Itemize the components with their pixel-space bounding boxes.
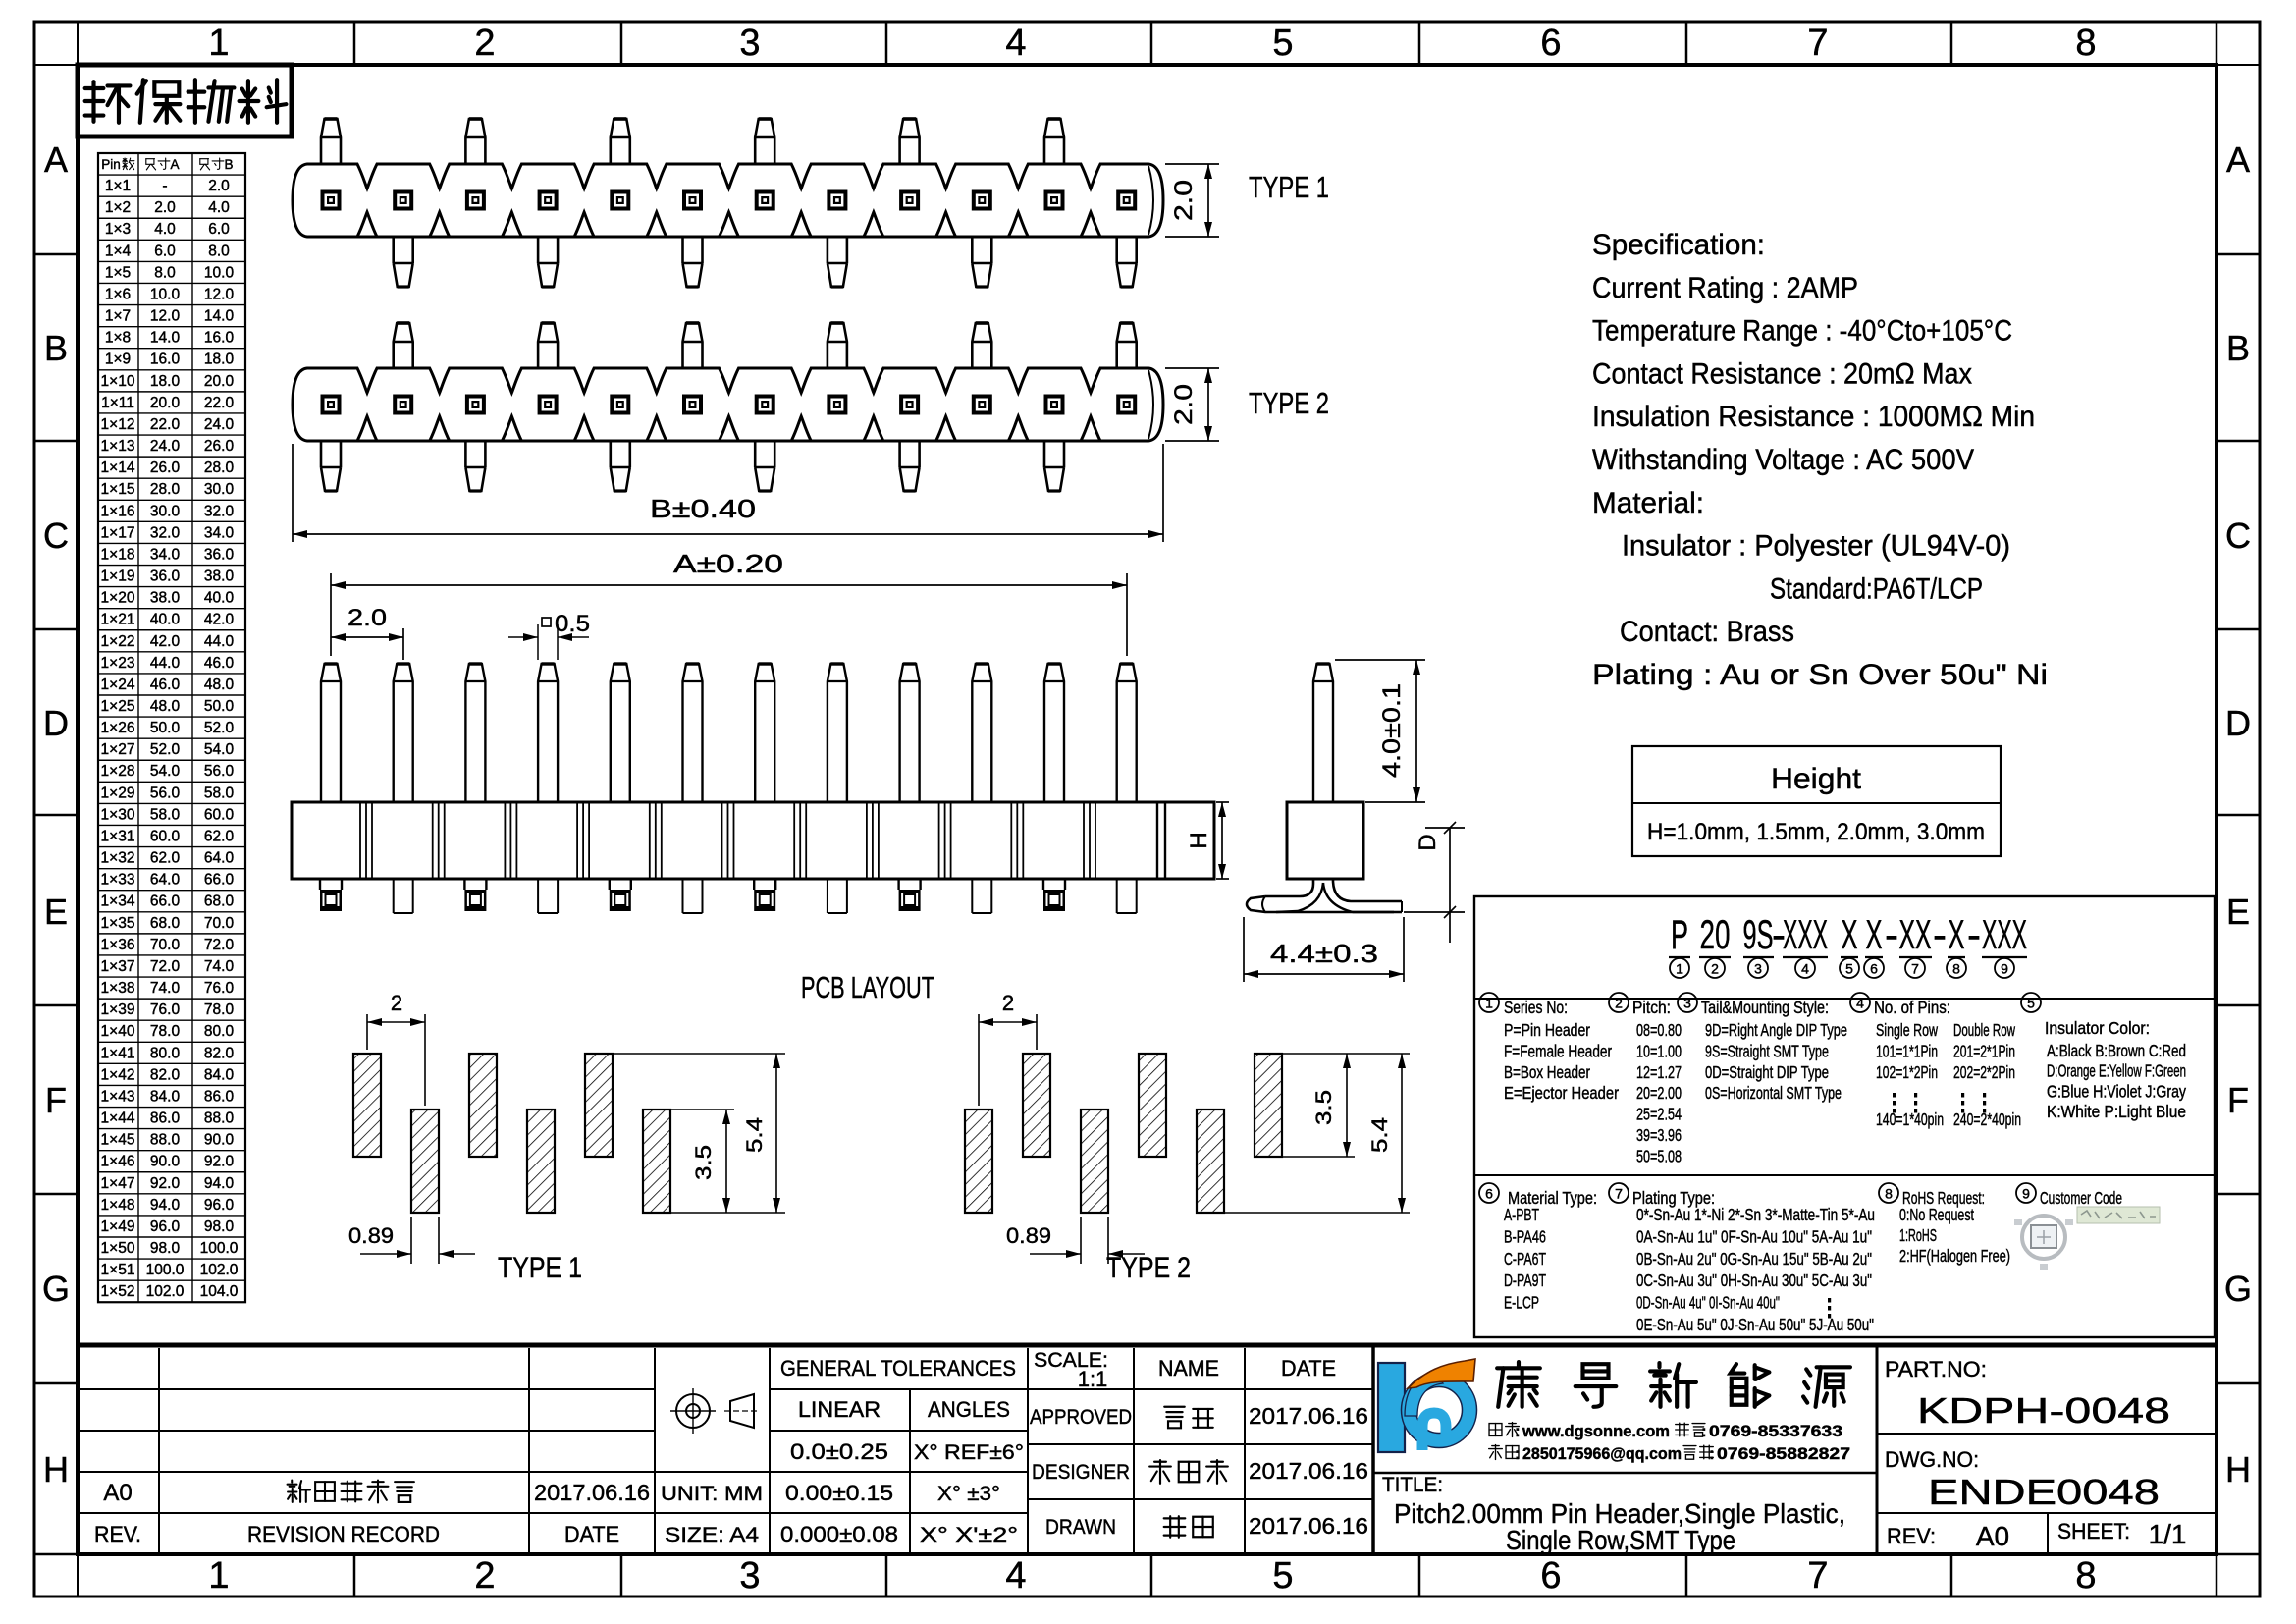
svg-text:68.0: 68.0 [150,915,181,932]
svg-text:76.0: 76.0 [150,1001,181,1018]
svg-text:GENERAL TOLERANCES: GENERAL TOLERANCES [780,1356,1016,1380]
svg-text:Current Rating : 2AMP: Current Rating : 2AMP [1592,272,1858,304]
svg-text:48.0: 48.0 [150,698,181,715]
svg-text:58.0: 58.0 [150,806,181,823]
svg-text:3: 3 [739,1555,760,1597]
svg-text:1×36: 1×36 [101,937,135,953]
svg-text:2017.06.16: 2017.06.16 [1249,1513,1368,1539]
svg-text:1×18: 1×18 [101,546,135,563]
svg-text:PCB LAYOUT: PCB LAYOUT [801,970,934,1004]
svg-text:1×12: 1×12 [101,416,135,433]
svg-text:0A-Sn-Au 1u" 0F-Sn-Au 10u" 5A: 0A-Sn-Au 1u" 0F-Sn-Au 10u" 5A-Au 1u" [1636,1226,1872,1246]
svg-text:P: P [1671,911,1688,957]
svg-text:100.0: 100.0 [200,1240,239,1257]
svg-text:1×16: 1×16 [101,503,135,519]
svg-text:1×2: 1×2 [105,199,131,216]
svg-text:2: 2 [1002,991,1014,1015]
svg-text:1×3: 1×3 [105,221,131,238]
svg-text:66.0: 66.0 [204,872,235,889]
svg-text:36.0: 36.0 [150,568,181,585]
svg-text:3: 3 [1754,961,1762,977]
svg-text:202=2*2Pin: 202=2*2Pin [1953,1062,2015,1082]
svg-text:Standard:PA6T/LCP: Standard:PA6T/LCP [1770,572,1983,605]
svg-text:8: 8 [1952,961,1960,977]
svg-text:9S=Straight SMT Type: 9S=Straight SMT Type [1705,1041,1829,1060]
svg-text:7: 7 [1911,961,1919,977]
svg-text:66.0: 66.0 [150,893,181,910]
svg-text:DESIGNER: DESIGNER [1032,1461,1130,1484]
svg-text:7: 7 [1615,1186,1623,1202]
svg-text:1×4: 1×4 [105,243,132,259]
svg-text:E=Ejector Header: E=Ejector Header [1504,1083,1619,1103]
svg-text:4: 4 [1005,23,1026,64]
svg-text:1×51: 1×51 [101,1262,135,1278]
svg-text:16.0: 16.0 [150,352,181,368]
svg-text:A: A [2226,139,2250,180]
svg-text:24.0: 24.0 [150,438,181,455]
svg-text:No. of Pins:: No. of Pins: [1874,998,1950,1017]
svg-text:2:HF(Halogen Free): 2:HF(Halogen Free) [1899,1246,2010,1266]
svg-text:20.0: 20.0 [204,373,235,390]
svg-text:ENDE0048: ENDE0048 [1928,1472,2160,1512]
svg-text:0769-85337633: 0769-85337633 [1709,1422,1842,1440]
svg-text:Pitch:: Pitch: [1632,998,1671,1017]
svg-text:64.0: 64.0 [204,850,235,867]
svg-text:UNIT: MM: UNIT: MM [661,1483,763,1505]
svg-text:REVISION RECORD: REVISION RECORD [247,1522,440,1546]
svg-text:18.0: 18.0 [150,373,181,390]
svg-text:Insulator : Polyester (UL94V-0: Insulator : Polyester (UL94V-0) [1622,530,2010,563]
svg-text:3: 3 [739,23,760,64]
svg-text:A0: A0 [103,1480,132,1506]
svg-text:1×17: 1×17 [101,524,135,541]
svg-text:1×20: 1×20 [101,590,135,607]
svg-text:86.0: 86.0 [150,1110,181,1127]
svg-text:1:1: 1:1 [1078,1367,1108,1391]
svg-text::: : [1709,1444,1715,1463]
svg-text:2850175966@qq.com: 2850175966@qq.com [1522,1444,1682,1463]
svg-text:4.0: 4.0 [154,221,176,238]
svg-text:P=Pin Header: P=Pin Header [1504,1020,1590,1040]
svg-text:H=1.0mm, 1.5mm, 2.0mm, 3.0mm: H=1.0mm, 1.5mm, 2.0mm, 3.0mm [1647,819,1985,845]
svg-text:38.0: 38.0 [204,568,235,585]
svg-text:KDPH-0048: KDPH-0048 [1917,1390,2170,1431]
svg-text:22.0: 22.0 [150,416,181,433]
svg-text:78.0: 78.0 [204,1001,235,1018]
svg-text:REV.: REV. [94,1522,141,1546]
svg-text:74.0: 74.0 [204,958,235,975]
svg-text:240=2*40pin: 240=2*40pin [1953,1110,2021,1129]
svg-text:9S: 9S [1743,911,1774,957]
svg-text:-: - [1885,911,1898,957]
svg-text:1×28: 1×28 [101,763,135,780]
svg-text:X: X [1842,911,1858,957]
svg-text:Customer Code: Customer Code [2040,1188,2122,1208]
svg-text:56.0: 56.0 [150,785,181,801]
svg-text:APPROVED: APPROVED [1030,1406,1132,1429]
svg-text:2: 2 [391,991,402,1015]
svg-text:1×9: 1×9 [105,352,131,368]
svg-text:Single Row: Single Row [1876,1020,1938,1040]
svg-text:1×42: 1×42 [101,1066,135,1083]
svg-text:B=Box Header: B=Box Header [1504,1062,1590,1082]
svg-text:4.4±0.3: 4.4±0.3 [1270,939,1378,968]
svg-text:Withstanding Voltage : AC 500V: Withstanding Voltage : AC 500V [1592,444,1974,476]
svg-text:28.0: 28.0 [150,481,181,498]
svg-text::: : [1515,1422,1521,1440]
svg-text:94.0: 94.0 [204,1175,235,1192]
svg-text:50=5.08: 50=5.08 [1636,1146,1682,1165]
svg-text::: : [1515,1444,1521,1463]
svg-text:94.0: 94.0 [150,1197,181,1214]
svg-text:1×10: 1×10 [101,373,135,390]
svg-text:D: D [1415,834,1441,850]
svg-text:ANGLES: ANGLES [928,1397,1010,1422]
svg-text:36.0: 36.0 [204,546,235,563]
svg-text:44.0: 44.0 [150,655,181,672]
svg-text:0*-Sn-Au 1*-Ni 2*-Sn 3*-Matte-: 0*-Sn-Au 1*-Ni 2*-Sn 3*-Matte-Tin 5*-Au [1636,1205,1875,1224]
svg-text:DRAWN: DRAWN [1045,1516,1116,1539]
svg-text:6: 6 [1485,1186,1493,1202]
svg-text:84.0: 84.0 [150,1088,181,1105]
svg-text:0S=Horizontal SMT Type: 0S=Horizontal SMT Type [1705,1083,1842,1103]
svg-text:70.0: 70.0 [150,937,181,953]
svg-text:1×30: 1×30 [101,806,135,823]
svg-text:20.0: 20.0 [150,395,181,411]
svg-text:102.0: 102.0 [146,1283,185,1300]
svg-text:1×40: 1×40 [101,1023,135,1040]
svg-text:1×25: 1×25 [101,698,135,715]
svg-text:0D=Straight DIP Type: 0D=Straight DIP Type [1705,1062,1829,1082]
svg-text:98.0: 98.0 [204,1218,235,1235]
svg-text:20=2.00: 20=2.00 [1636,1083,1682,1103]
svg-text:62.0: 62.0 [204,828,235,844]
svg-text:0.0±0.25: 0.0±0.25 [790,1439,888,1464]
svg-text:1×19: 1×19 [101,568,135,585]
svg-text:Height: Height [1771,763,1862,795]
svg-text:1×15: 1×15 [101,481,135,498]
svg-text:SHEET:: SHEET: [2057,1519,2130,1543]
svg-text:16.0: 16.0 [204,330,235,347]
svg-text:2.0: 2.0 [154,199,176,216]
svg-text:82.0: 82.0 [150,1066,181,1083]
svg-text:9: 9 [2022,1186,2030,1202]
svg-text:E: E [2226,892,2250,932]
svg-text:1×13: 1×13 [101,438,135,455]
svg-text:NAME: NAME [1158,1356,1219,1380]
svg-text:Contact: Brass: Contact: Brass [1620,616,1794,648]
svg-text:1×31: 1×31 [101,828,135,844]
svg-text:E: E [44,892,68,932]
svg-text:1×21: 1×21 [101,612,135,628]
svg-text:B: B [224,157,233,172]
svg-text:6: 6 [1540,23,1561,64]
svg-text:100.0: 100.0 [146,1262,185,1278]
svg-text:1/1: 1/1 [2149,1519,2187,1549]
svg-text:H: H [43,1449,69,1489]
svg-text:5: 5 [1272,23,1293,64]
svg-text:1×5: 1×5 [105,264,131,281]
svg-text:8: 8 [1885,1186,1893,1202]
svg-text:14.0: 14.0 [150,330,181,347]
svg-text:1×27: 1×27 [101,741,135,758]
svg-text:4: 4 [1005,1555,1026,1597]
svg-text:34.0: 34.0 [150,546,181,563]
svg-text:3.5: 3.5 [691,1145,716,1180]
svg-text:TYPE 1: TYPE 1 [1249,170,1329,204]
svg-text:1×39: 1×39 [101,1001,135,1018]
svg-text:F: F [2227,1080,2249,1120]
svg-text:0.89: 0.89 [1006,1223,1051,1248]
svg-text:5: 5 [2027,996,2035,1011]
svg-text:0E-Sn-Au 5u" 0J-Sn-Au 50u" 5J: 0E-Sn-Au 5u" 0J-Sn-Au 50u" 5J-Au 50u" [1636,1315,1874,1334]
svg-text:E-LCP: E-LCP [1504,1293,1539,1313]
svg-text:140=1*40pin: 140=1*40pin [1876,1110,1944,1129]
svg-text:TYPE 2: TYPE 2 [1249,386,1329,420]
svg-text:Series No:: Series No: [1504,998,1568,1017]
svg-text:20: 20 [1700,911,1731,957]
svg-text:A0: A0 [1976,1521,2009,1551]
svg-text:10.0: 10.0 [150,286,181,302]
svg-text:48.0: 48.0 [204,677,235,693]
svg-text:22.0: 22.0 [204,395,235,411]
svg-text:1×41: 1×41 [101,1045,135,1061]
svg-text:1×38: 1×38 [101,980,135,997]
svg-text:LINEAR: LINEAR [798,1397,881,1422]
svg-text::: : [1701,1422,1707,1440]
svg-text:5: 5 [1845,961,1853,977]
svg-text:1: 1 [208,23,229,64]
svg-text:1×34: 1×34 [101,893,135,910]
svg-text:101=1*1Pin: 101=1*1Pin [1876,1041,1938,1060]
svg-text:XXX: XXX [1783,911,1828,957]
svg-text:-: - [1967,911,1981,957]
svg-text:PART.NO:: PART.NO: [1885,1357,1987,1381]
svg-text:2.0: 2.0 [1170,180,1198,221]
svg-text:1×47: 1×47 [101,1175,135,1192]
svg-text:5.4: 5.4 [742,1117,767,1153]
svg-text:0.89: 0.89 [348,1223,394,1248]
svg-text:-: - [162,178,167,194]
svg-text:A-PBT: A-PBT [1504,1205,1539,1224]
svg-text:1×6: 1×6 [105,286,131,302]
svg-text:46.0: 46.0 [150,677,181,693]
svg-text:1×32: 1×32 [101,850,135,867]
svg-text:3.5: 3.5 [1311,1090,1336,1125]
svg-text:1×43: 1×43 [101,1088,135,1105]
svg-text:56.0: 56.0 [204,763,235,780]
svg-text:DATE: DATE [564,1522,619,1546]
svg-text:Plating : Au or Sn Over 50u" N: Plating : Au or Sn Over 50u" Ni [1592,659,2048,691]
svg-text:A: A [170,157,179,172]
svg-text:54.0: 54.0 [150,763,181,780]
svg-text:1×45: 1×45 [101,1132,135,1149]
svg-text:D:Orange E:Yellow F:Green: D:Orange E:Yellow F:Green [2047,1061,2186,1081]
svg-text:1×23: 1×23 [101,655,135,672]
svg-text:1: 1 [208,1555,229,1597]
svg-text:4: 4 [1856,996,1864,1011]
svg-text:A: A [44,139,68,180]
svg-text:30.0: 30.0 [204,481,235,498]
svg-text:80.0: 80.0 [150,1045,181,1061]
svg-text:K:White P:Light Blue: K:White P:Light Blue [2047,1102,2186,1121]
svg-text:1×1: 1×1 [105,178,131,194]
svg-text:6.0: 6.0 [208,221,230,238]
svg-text:www.dgsonne.com: www.dgsonne.com [1522,1422,1670,1440]
svg-text:C-PA6T: C-PA6T [1504,1249,1546,1269]
svg-text:52.0: 52.0 [204,720,235,736]
svg-text:0C-Sn-Au 3u" 0H-Sn-Au 30u" 5C: 0C-Sn-Au 3u" 0H-Sn-Au 30u" 5C-Au 3u" [1636,1271,1872,1290]
svg-text:B±0.40: B±0.40 [650,494,756,523]
svg-text:8: 8 [2075,1555,2096,1597]
svg-text:3: 3 [1683,996,1691,1011]
svg-text:Double Row: Double Row [1953,1020,2015,1040]
svg-text:0.5: 0.5 [555,611,590,637]
svg-text:X° REF±6°: X° REF±6° [914,1441,1024,1464]
svg-text:X° X'±2°: X° X'±2° [920,1524,1018,1546]
svg-text:90.0: 90.0 [204,1132,235,1149]
svg-text:7: 7 [1807,23,1828,64]
svg-text:12=1.27: 12=1.27 [1636,1062,1682,1082]
svg-text:A:Black B:Brown C:Red: A:Black B:Brown C:Red [2047,1041,2186,1060]
svg-text:6: 6 [1870,961,1878,977]
svg-text:12.0: 12.0 [204,286,235,302]
svg-text:5: 5 [1272,1555,1293,1597]
svg-text:10=1.00: 10=1.00 [1636,1041,1682,1060]
svg-text:62.0: 62.0 [150,850,181,867]
svg-text:50.0: 50.0 [204,698,235,715]
svg-text:1×35: 1×35 [101,915,135,932]
svg-text:60.0: 60.0 [204,806,235,823]
svg-text:1×8: 1×8 [105,330,131,347]
svg-text:60.0: 60.0 [150,828,181,844]
svg-text:Specification:: Specification: [1592,229,1765,261]
svg-text:2017.06.16: 2017.06.16 [534,1480,650,1505]
svg-text:F=Female Header: F=Female Header [1504,1041,1612,1060]
svg-text:1×29: 1×29 [101,785,135,801]
svg-text:H: H [1186,832,1212,848]
svg-text:2.0: 2.0 [208,178,230,194]
svg-text:08=0.80: 08=0.80 [1636,1020,1682,1040]
svg-text:Material:: Material: [1592,487,1704,519]
svg-text:96.0: 96.0 [150,1218,181,1235]
svg-text:1×50: 1×50 [101,1240,135,1257]
svg-text:42.0: 42.0 [150,633,181,650]
svg-text:DWG.NO:: DWG.NO: [1885,1447,1979,1472]
svg-text:14.0: 14.0 [204,308,235,325]
svg-text:102=1*2Pin: 102=1*2Pin [1876,1062,1938,1082]
svg-text:201=2*1Pin: 201=2*1Pin [1953,1041,2015,1060]
svg-text:52.0: 52.0 [150,741,181,758]
svg-text:64.0: 64.0 [150,872,181,889]
svg-text:7: 7 [1807,1555,1828,1597]
svg-text:82.0: 82.0 [204,1045,235,1061]
svg-text:8.0: 8.0 [154,264,176,281]
svg-text:1×52: 1×52 [101,1283,135,1300]
svg-text:32.0: 32.0 [204,503,235,519]
svg-text:10.0: 10.0 [204,264,235,281]
svg-text:Insulator Color:: Insulator Color: [2045,1018,2150,1038]
svg-text:96.0: 96.0 [204,1197,235,1214]
svg-text:2: 2 [1711,961,1719,977]
svg-text:32.0: 32.0 [150,524,181,541]
svg-text:B: B [2226,328,2250,368]
svg-text:XXX: XXX [1982,911,2027,957]
svg-text:-: - [1933,911,1947,957]
svg-text:1×24: 1×24 [101,677,135,693]
svg-text:9: 9 [2001,961,2008,977]
svg-text:0B-Sn-Au 2u" 0G-Sn-Au 15u" 5B: 0B-Sn-Au 2u" 0G-Sn-Au 15u" 5B-Au 2u" [1636,1249,1872,1269]
svg-text:12.0: 12.0 [150,308,181,325]
svg-text:X: X [1866,911,1883,957]
svg-text:102.0: 102.0 [200,1262,239,1278]
svg-text:1×46: 1×46 [101,1154,135,1170]
svg-text:92.0: 92.0 [204,1154,235,1170]
svg-text:78.0: 78.0 [150,1023,181,1040]
svg-text:1×49: 1×49 [101,1218,135,1235]
svg-text:98.0: 98.0 [150,1240,181,1257]
svg-text:26.0: 26.0 [150,460,181,476]
svg-text:25=2.54: 25=2.54 [1636,1105,1682,1124]
svg-text:XX: XX [1899,911,1932,957]
svg-text:84.0: 84.0 [204,1066,235,1083]
svg-text:Tail&Mounting Style:: Tail&Mounting Style: [1701,998,1829,1017]
svg-text:1: 1 [1485,996,1493,1011]
svg-text:42.0: 42.0 [204,612,235,628]
svg-text:2.0: 2.0 [1170,384,1198,425]
svg-text:74.0: 74.0 [150,980,181,997]
svg-text:4: 4 [1801,961,1809,977]
svg-text:1×33: 1×33 [101,872,135,889]
svg-text:2: 2 [474,23,495,64]
svg-text:30.0: 30.0 [150,503,181,519]
svg-text:D-PA9T: D-PA9T [1504,1271,1546,1290]
svg-text:TITLE:: TITLE: [1382,1474,1443,1496]
svg-text:70.0: 70.0 [204,915,235,932]
svg-text:8.0: 8.0 [208,243,230,259]
svg-text:F: F [45,1080,67,1120]
svg-text:38.0: 38.0 [150,590,181,607]
svg-text:0.000±0.08: 0.000±0.08 [780,1522,898,1546]
svg-text:8: 8 [2075,23,2096,64]
svg-text:TYPE 1: TYPE 1 [498,1252,582,1284]
svg-text:9D=Right Angle DIP Type: 9D=Right Angle DIP Type [1705,1020,1847,1040]
svg-text:6: 6 [1540,1555,1561,1597]
svg-text:G:Blue H:Violet J:Gray: G:Blue H:Violet J:Gray [2047,1081,2186,1101]
svg-text:0:No Request: 0:No Request [1899,1205,1974,1224]
svg-text:4.0: 4.0 [208,199,230,216]
svg-text:Contact Resistance : 20mΩ Max: Contact Resistance : 20mΩ Max [1592,357,1972,390]
svg-text:88.0: 88.0 [204,1110,235,1127]
svg-text:1×11: 1×11 [101,395,134,411]
svg-text:D: D [43,703,69,743]
svg-text:68.0: 68.0 [204,893,235,910]
svg-text:D: D [2225,703,2251,743]
svg-text:2.0: 2.0 [347,605,387,631]
svg-text:B: B [44,328,68,368]
svg-text:TYPE 2: TYPE 2 [1106,1252,1191,1284]
svg-text:Temperature Range : -40°Cto+10: Temperature Range : -40°Cto+105°C [1592,315,2012,348]
svg-text:1×48: 1×48 [101,1197,135,1214]
svg-text:1×22: 1×22 [101,633,135,650]
svg-text:1×7: 1×7 [105,308,131,325]
svg-text:88.0: 88.0 [150,1132,181,1149]
svg-text:28.0: 28.0 [204,460,235,476]
svg-text:6.0: 6.0 [154,243,176,259]
svg-text:50.0: 50.0 [150,720,181,736]
svg-text:90.0: 90.0 [150,1154,181,1170]
svg-text:1×37: 1×37 [101,958,135,975]
